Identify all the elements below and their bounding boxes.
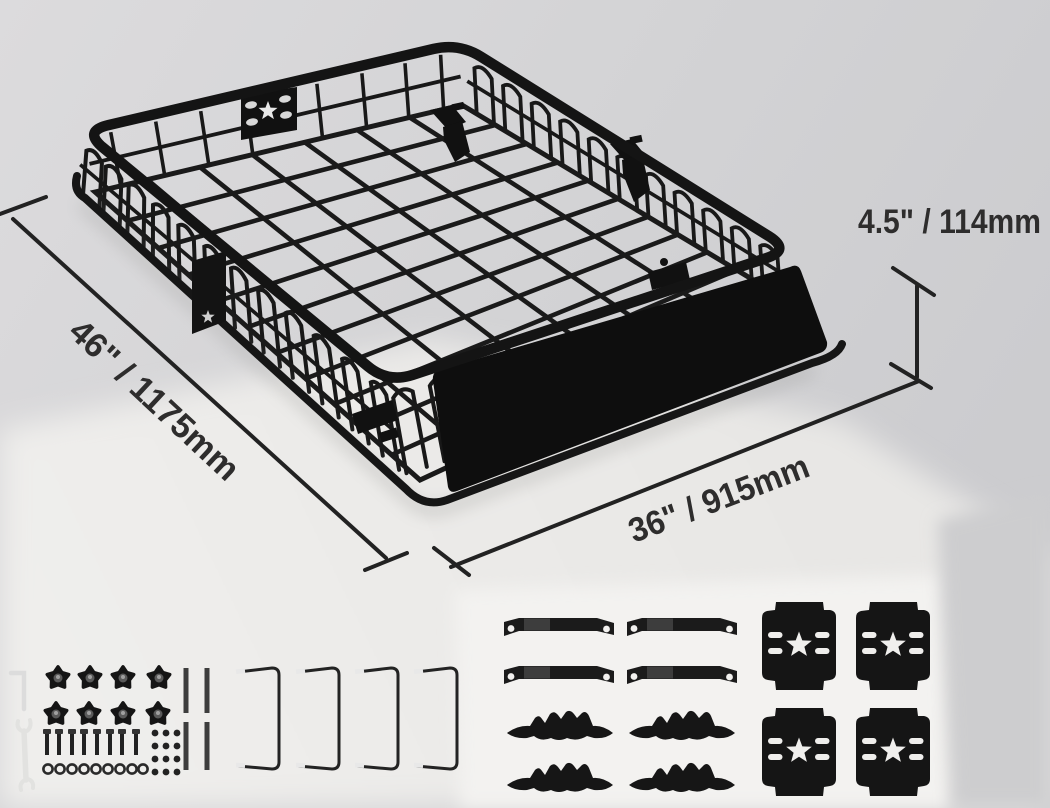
svg-text:4.5" / 114mm: 4.5" / 114mm bbox=[858, 203, 1041, 241]
